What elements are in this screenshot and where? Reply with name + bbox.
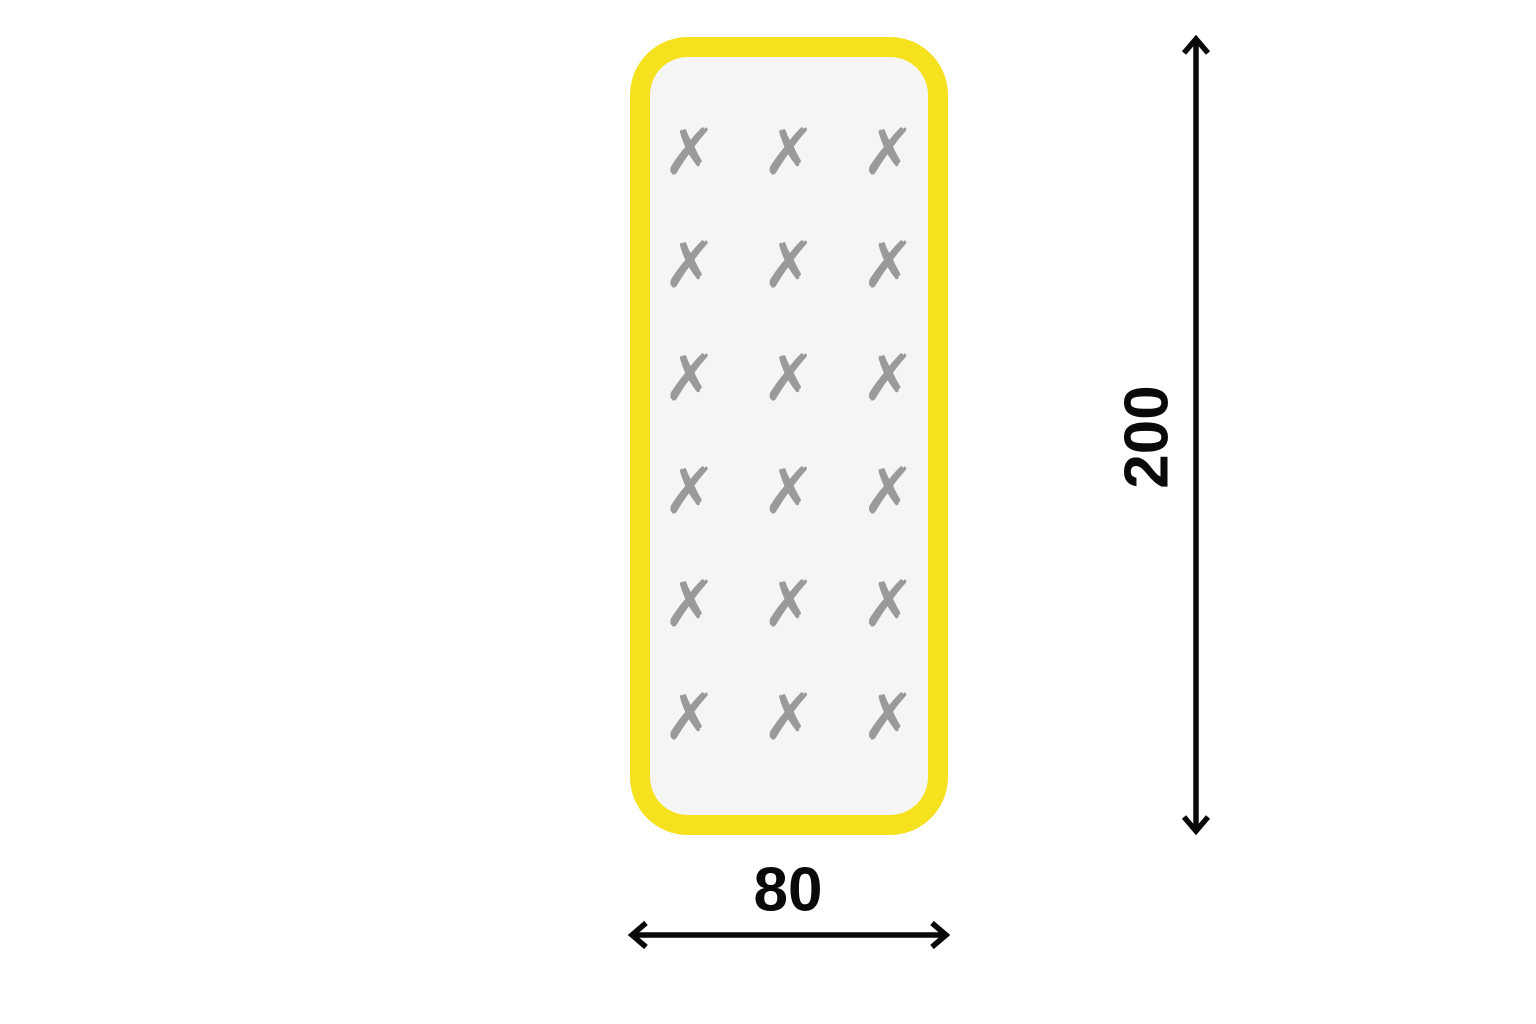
cross-mark-icon: ✗ [739,547,838,660]
cross-mark-icon: ✗ [839,547,938,660]
cross-mark-icon: ✗ [640,434,739,547]
cross-mark-icon: ✗ [839,660,938,773]
height-dimension-label: 200 [1112,385,1183,488]
cross-mark-icon: ✗ [739,321,838,434]
diagram-canvas: ✗✗✗✗✗✗✗✗✗✗✗✗✗✗✗✗✗✗ 200 80 [0,0,1536,1024]
cross-mark-icon: ✗ [839,434,938,547]
mat-outline: ✗✗✗✗✗✗✗✗✗✗✗✗✗✗✗✗✗✗ [630,37,948,835]
cross-mark-icon: ✗ [640,321,739,434]
width-dimension-label: 80 [754,855,823,926]
mat-surface: ✗✗✗✗✗✗✗✗✗✗✗✗✗✗✗✗✗✗ [650,57,928,815]
cross-mark-icon: ✗ [839,208,938,321]
cross-mark-icon: ✗ [839,321,938,434]
cross-grid: ✗✗✗✗✗✗✗✗✗✗✗✗✗✗✗✗✗✗ [640,95,938,773]
cross-mark-icon: ✗ [839,95,938,208]
cross-mark-icon: ✗ [739,434,838,547]
cross-mark-icon: ✗ [739,95,838,208]
cross-mark-icon: ✗ [640,547,739,660]
cross-mark-icon: ✗ [640,95,739,208]
height-dimension-arrow [1180,35,1212,835]
cross-mark-icon: ✗ [640,660,739,773]
cross-mark-icon: ✗ [739,660,838,773]
cross-mark-icon: ✗ [640,208,739,321]
cross-mark-icon: ✗ [739,208,838,321]
